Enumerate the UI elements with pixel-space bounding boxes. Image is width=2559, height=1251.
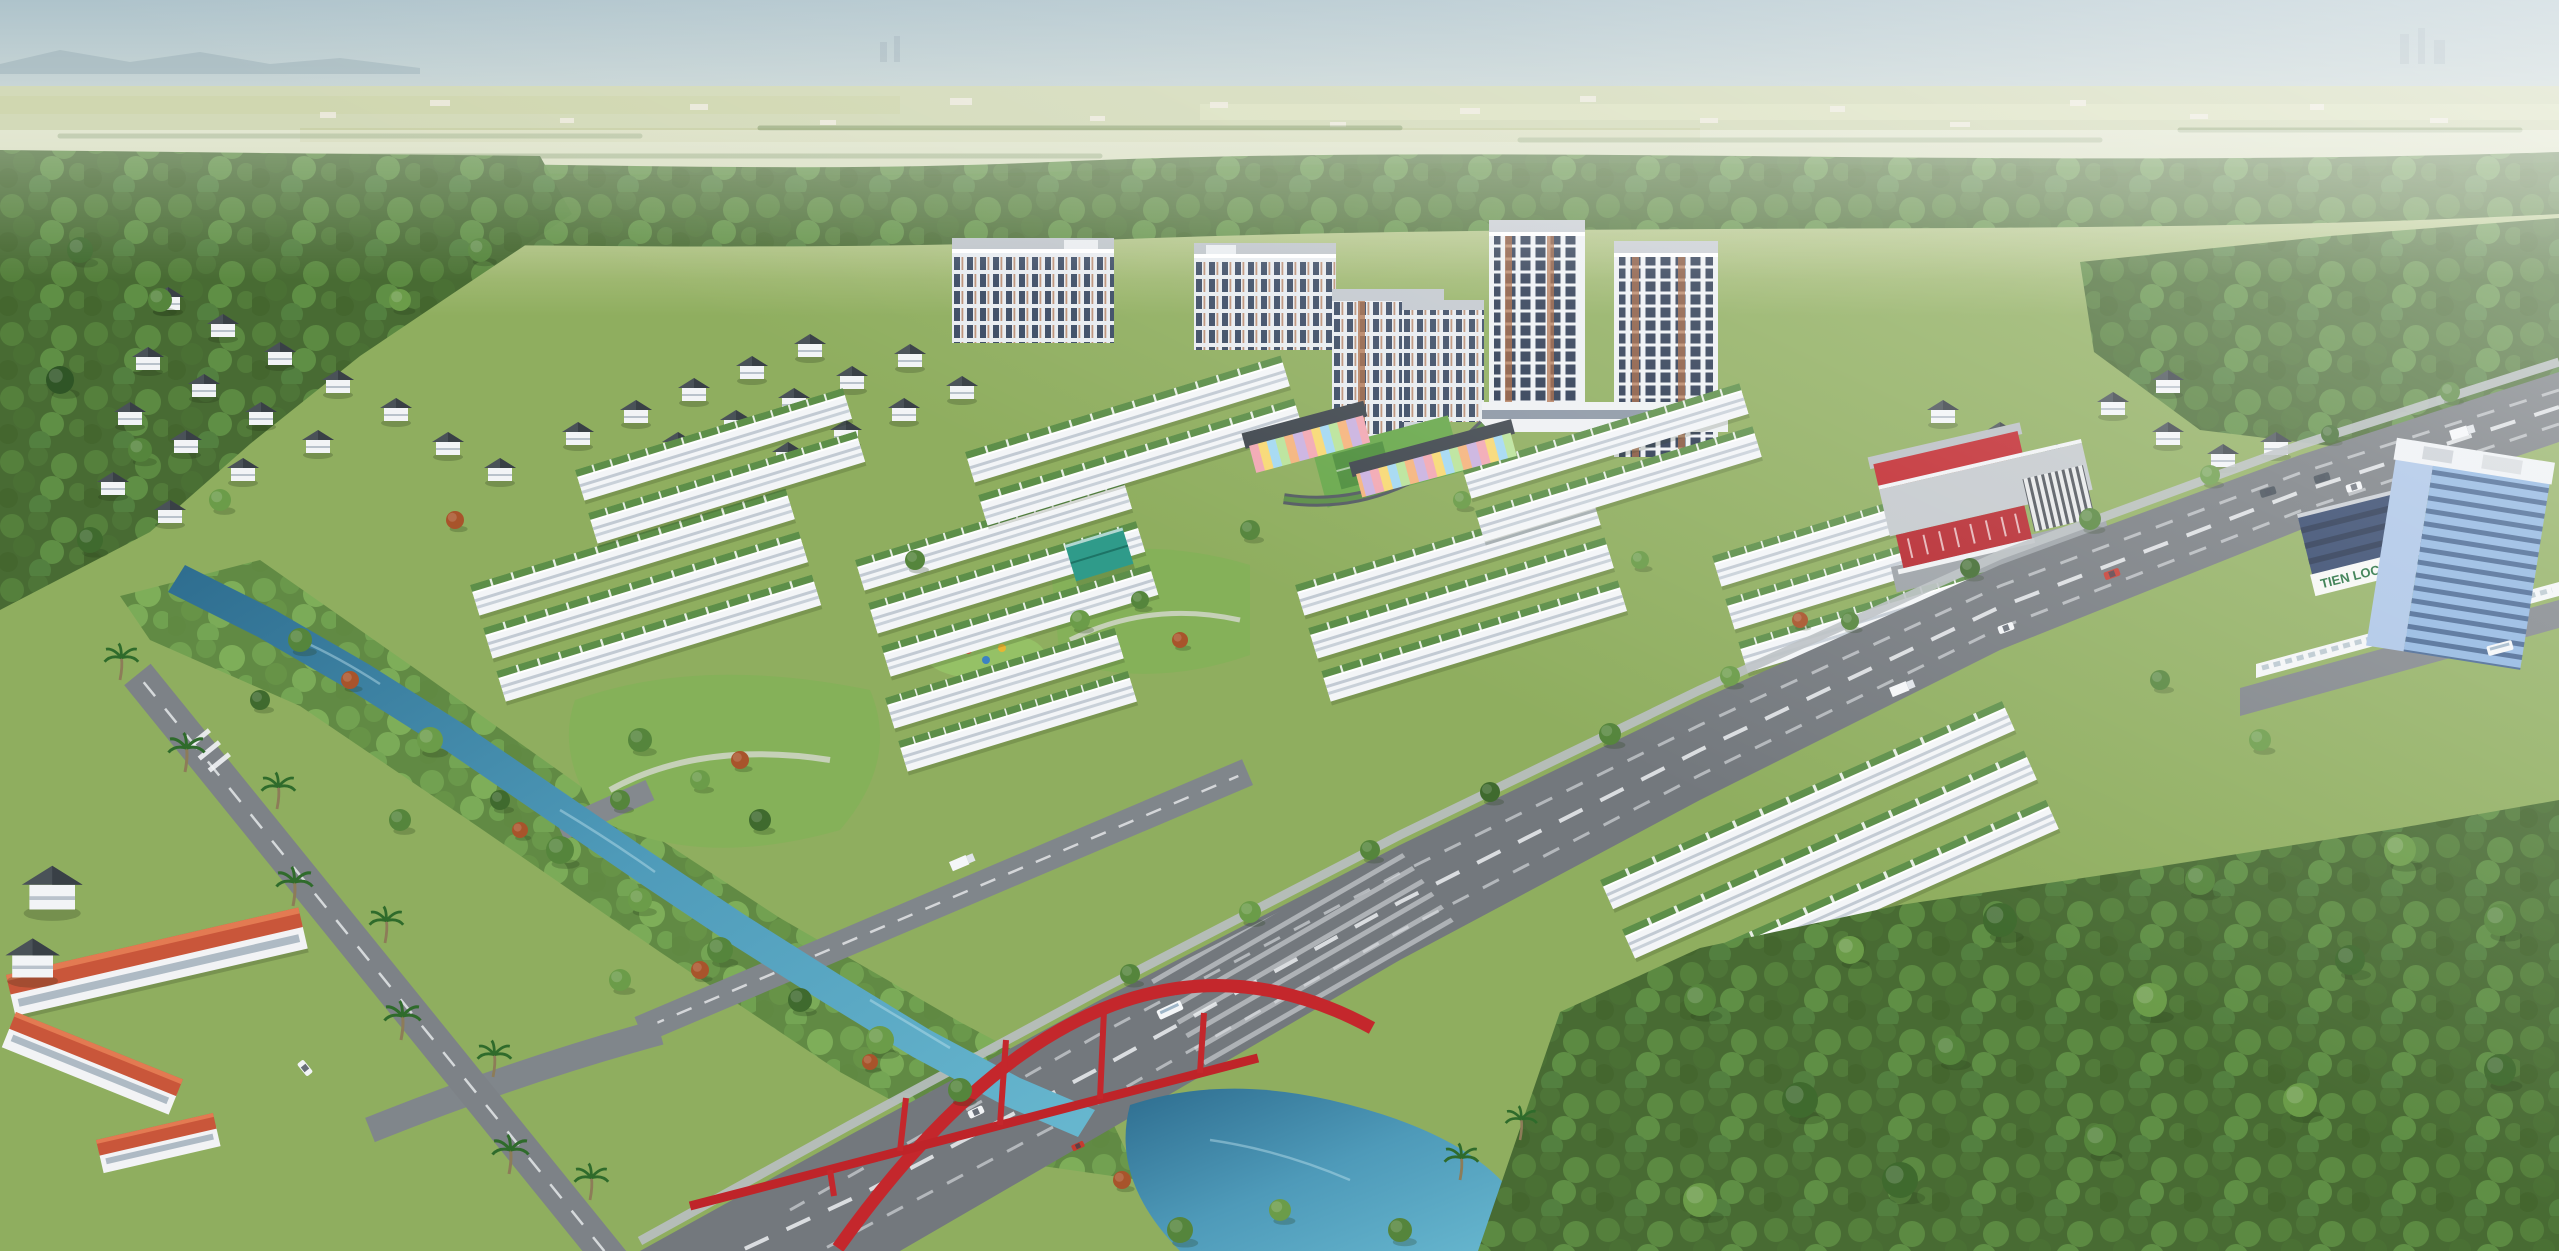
sunlight-glare xyxy=(0,0,2559,1251)
township-render: TIEN LOC PLAZA xyxy=(0,0,2559,1251)
aerial-render-image: TIEN LOC PLAZA xyxy=(0,0,2559,1251)
